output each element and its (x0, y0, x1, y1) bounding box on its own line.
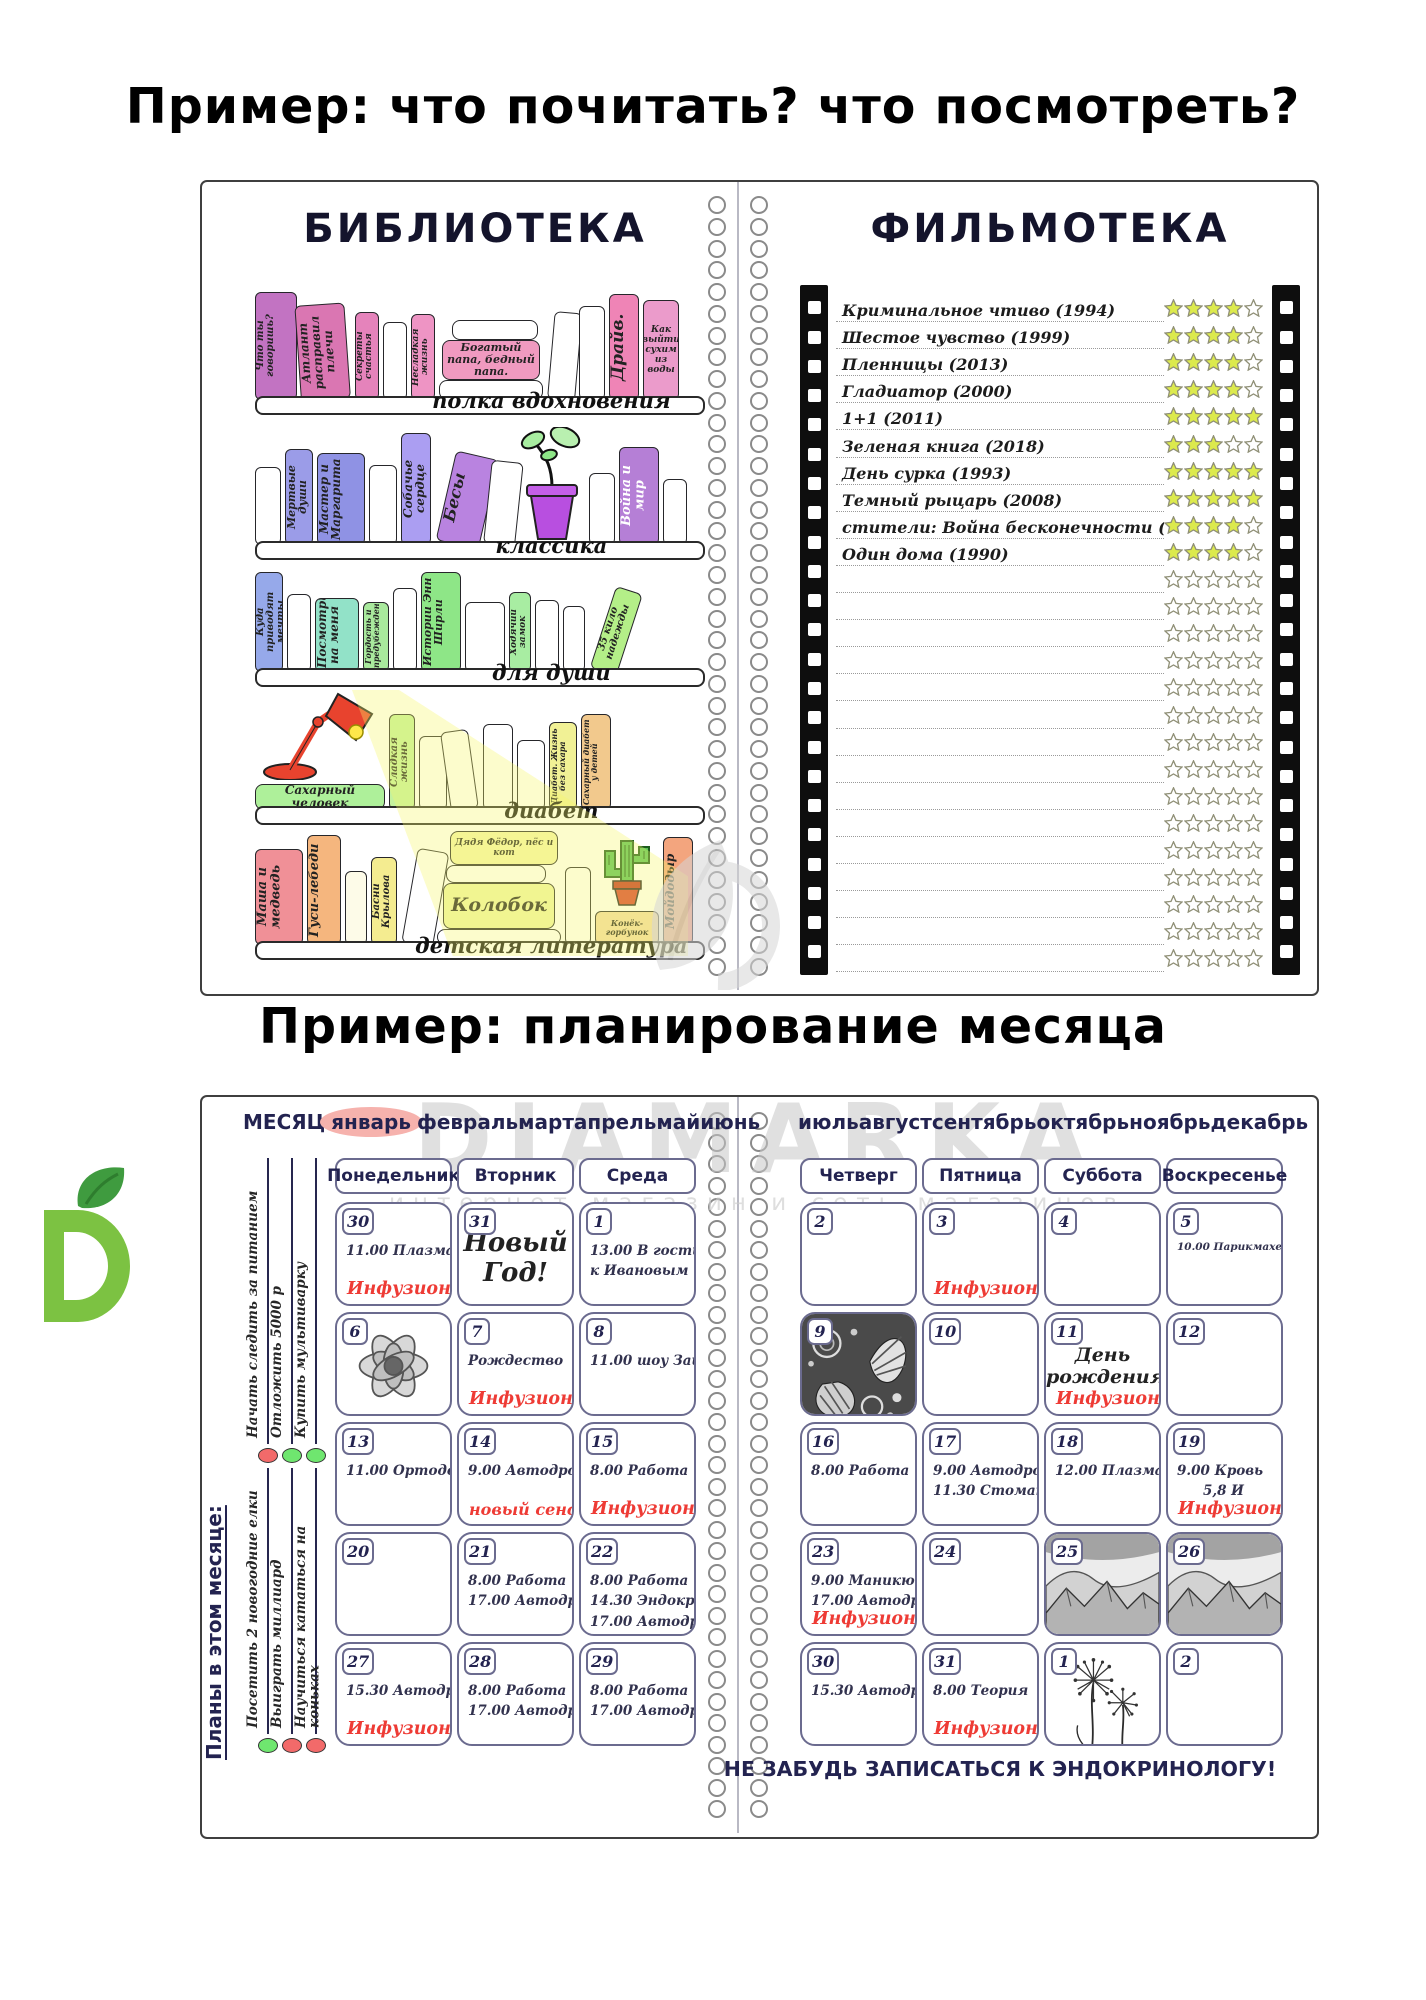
film-strip-hole (1280, 360, 1293, 373)
film-row (836, 729, 1268, 756)
star-icon (1204, 326, 1223, 348)
spiral-ring (708, 1435, 726, 1453)
star-icon (1204, 380, 1223, 402)
film-rating (1164, 922, 1268, 945)
film-strip-hole (1280, 301, 1293, 314)
film-strip-hole (1280, 477, 1293, 490)
star-icon (1204, 624, 1223, 646)
star-icon (1184, 380, 1203, 402)
spiral-ring (750, 1607, 768, 1625)
film-title: Шестое чувство (1999) (836, 328, 1164, 349)
spiral-ring (750, 718, 768, 736)
film-row: День сурка (1993) (836, 458, 1268, 485)
spiral-ring (750, 370, 768, 388)
film-rating (1164, 407, 1268, 430)
spiral-ring (750, 305, 768, 323)
star-icon (1184, 353, 1203, 375)
film-strip-hole (1280, 741, 1293, 754)
film-strip-hole (808, 448, 821, 461)
spiral-ring (750, 1628, 768, 1646)
spiral-ring (750, 348, 768, 366)
film-row (836, 674, 1268, 701)
star-icon (1184, 787, 1203, 809)
spiral-ring (708, 544, 726, 562)
star-icon (1164, 516, 1183, 538)
star-icon (1224, 353, 1243, 375)
month-name: сентябрь (932, 1110, 1037, 1134)
film-strip-hole (1280, 448, 1293, 461)
star-icon (1204, 868, 1223, 890)
star-icon (1204, 543, 1223, 565)
star-icon (1224, 949, 1243, 971)
film-rating (1164, 868, 1268, 891)
spiral-ring (708, 893, 726, 911)
film-rating (1164, 651, 1268, 674)
star-icon (1244, 462, 1263, 484)
spiral-ring (750, 1456, 768, 1474)
spiral-ring (750, 392, 768, 410)
filmoteka-title: ФИЛЬМОТЕКА (810, 206, 1290, 252)
star-icon (1244, 868, 1263, 890)
spiral-ring (708, 1671, 726, 1689)
film-row: Зеленая книга (2018) (836, 430, 1268, 457)
spiral-ring (708, 718, 726, 736)
film-title: 1+1 (2011) (836, 409, 1164, 430)
spiral-ring (708, 675, 726, 693)
star-icon (1224, 543, 1243, 565)
film-rating (1164, 353, 1268, 376)
spiral-ring (750, 1542, 768, 1560)
spiral-ring (750, 958, 768, 976)
spiral-ring (708, 1198, 726, 1216)
star-icon (1184, 543, 1203, 565)
film-strip-hole (1280, 565, 1293, 578)
film-row: Гладиатор (2000) (836, 376, 1268, 403)
star-icon (1244, 597, 1263, 619)
months-row-left: МЕСЯЦянварьфевральмартапрельмайиюнь (243, 1110, 703, 1134)
month-name: август (859, 1110, 932, 1134)
star-icon (1164, 570, 1183, 592)
star-icon (1164, 922, 1183, 944)
star-icon (1164, 841, 1183, 863)
spiral-ring (708, 1306, 726, 1324)
star-icon (1204, 814, 1223, 836)
star-icon (1184, 760, 1203, 782)
film-strip-hole (808, 536, 821, 549)
spiral-ring (708, 805, 726, 823)
film-row (836, 945, 1268, 972)
month-name: май (656, 1110, 700, 1134)
month-name: февраль (417, 1110, 518, 1134)
spiral-ring (750, 1413, 768, 1431)
star-icon (1224, 326, 1243, 348)
spiral-ring (750, 675, 768, 693)
film-list: Криминальное чтиво (1994)Шестое чувство … (836, 295, 1268, 973)
spiral-binding-holes (709, 196, 725, 976)
spiral-ring (708, 762, 726, 780)
star-icon (1244, 570, 1263, 592)
film-strip-left (800, 285, 828, 975)
spiral-ring (708, 435, 726, 453)
spiral-ring (708, 1800, 726, 1818)
film-row (836, 864, 1268, 891)
spiral-ring (708, 218, 726, 236)
spiral-ring (750, 805, 768, 823)
film-rating (1164, 570, 1268, 593)
spiral-ring (750, 784, 768, 802)
film-rating (1164, 949, 1268, 972)
spiral-binding-holes (751, 1112, 767, 1818)
film-strip-hole (1280, 711, 1293, 724)
star-icon (1224, 733, 1243, 755)
spiral-ring (708, 1155, 726, 1173)
film-strip-hole (1280, 916, 1293, 929)
spiral-ring (750, 936, 768, 954)
film-row (836, 810, 1268, 837)
film-strip-hole (1280, 594, 1293, 607)
spiral-ring (708, 1693, 726, 1711)
spiral-ring (708, 1585, 726, 1603)
star-icon (1244, 624, 1263, 646)
spiral-ring (708, 1349, 726, 1367)
film-strip-hole (1280, 682, 1293, 695)
star-icon (1244, 841, 1263, 863)
star-icon (1204, 922, 1223, 944)
star-icon (1204, 353, 1223, 375)
spiral-ring (750, 610, 768, 628)
spiral-ring (750, 893, 768, 911)
film-rating (1164, 597, 1268, 620)
month-name: ноябрь (1129, 1110, 1210, 1134)
star-icon (1224, 814, 1243, 836)
star-icon (1224, 570, 1243, 592)
spiral-ring (750, 762, 768, 780)
star-icon (1184, 435, 1203, 457)
spiral-ring (708, 1370, 726, 1388)
film-rating (1164, 787, 1268, 810)
star-icon (1204, 407, 1223, 429)
star-icon (1224, 489, 1243, 511)
spiral-ring (750, 1714, 768, 1732)
spiral-ring (750, 261, 768, 279)
star-icon (1164, 868, 1183, 890)
star-icon (1224, 787, 1243, 809)
film-title: Зеленая книга (2018) (836, 437, 1164, 458)
film-rating (1164, 814, 1268, 837)
month-name: апрель (574, 1110, 657, 1134)
film-title: Пленницы (2013) (836, 355, 1164, 376)
star-icon (1244, 787, 1263, 809)
spiral-ring (708, 457, 726, 475)
spiral-ring (708, 827, 726, 845)
spiral-ring (708, 479, 726, 497)
star-icon (1204, 760, 1223, 782)
film-strip-right (1272, 285, 1300, 975)
month-name: декабрь (1210, 1110, 1308, 1134)
spiral-ring (750, 1220, 768, 1238)
film-row: Пленницы (2013) (836, 349, 1268, 376)
star-icon (1164, 624, 1183, 646)
film-row (836, 647, 1268, 674)
star-icon (1164, 706, 1183, 728)
spiral-ring (750, 1650, 768, 1668)
star-icon (1204, 516, 1223, 538)
spiral-ring (750, 327, 768, 345)
spiral-ring (750, 544, 768, 562)
film-strip-hole (1280, 623, 1293, 636)
spiral-ring (750, 740, 768, 758)
spiral-ring (708, 1521, 726, 1539)
spiral-ring (708, 1327, 726, 1345)
star-icon (1244, 435, 1263, 457)
film-rating (1164, 516, 1268, 539)
spiral-ring (750, 1435, 768, 1453)
film-strip-hole (1280, 887, 1293, 900)
film-rating (1164, 380, 1268, 403)
spiral-ring (750, 588, 768, 606)
star-icon (1164, 895, 1183, 917)
film-row (836, 837, 1268, 864)
page-title-middle: Пример: планирование месяца (0, 998, 1426, 1055)
film-strip-hole (808, 945, 821, 958)
spiral-ring (708, 1628, 726, 1646)
spiral-ring (708, 849, 726, 867)
spiral-ring (750, 1284, 768, 1302)
film-rating (1164, 733, 1268, 756)
spiral-ring (708, 240, 726, 258)
star-icon (1164, 733, 1183, 755)
spiral-ring (708, 1478, 726, 1496)
spiral-ring (750, 1306, 768, 1324)
spiral-ring (750, 1134, 768, 1152)
spiral-ring (750, 697, 768, 715)
month-name: октябрь (1036, 1110, 1129, 1134)
spiral-ring (708, 1263, 726, 1281)
film-strip-hole (1280, 389, 1293, 402)
film-rating (1164, 760, 1268, 783)
film-row: Один дома (1990) (836, 539, 1268, 566)
film-strip-hole (1280, 828, 1293, 841)
film-rating (1164, 706, 1268, 729)
star-icon (1204, 787, 1223, 809)
spiral-ring (708, 871, 726, 889)
film-title: День сурка (1993) (836, 464, 1164, 485)
star-icon (1224, 624, 1243, 646)
star-icon (1224, 380, 1243, 402)
star-icon (1224, 760, 1243, 782)
star-icon (1184, 841, 1203, 863)
star-icon (1224, 841, 1243, 863)
star-icon (1204, 651, 1223, 673)
film-rating (1164, 435, 1268, 458)
star-icon (1184, 489, 1203, 511)
spiral-ring (708, 936, 726, 954)
star-icon (1224, 435, 1243, 457)
star-icon (1164, 380, 1183, 402)
spiral-ring (708, 588, 726, 606)
spiral-ring (708, 283, 726, 301)
star-icon (1244, 353, 1263, 375)
star-icon (1244, 516, 1263, 538)
star-icon (1184, 868, 1203, 890)
spiral-ring (708, 522, 726, 540)
months-row-right: июльавгустсентябрьоктябрьноябрьдекабрь (798, 1110, 1306, 1134)
star-icon (1244, 326, 1263, 348)
spiral-ring (750, 1564, 768, 1582)
spiral-ring (708, 631, 726, 649)
spiral-ring (708, 1736, 726, 1754)
spiral-ring (750, 1800, 768, 1818)
spiral-ring (750, 1349, 768, 1367)
film-title: Темный рыцарь (2008) (836, 491, 1164, 512)
star-icon (1244, 814, 1263, 836)
star-icon (1204, 678, 1223, 700)
spiral-ring (708, 958, 726, 976)
star-icon (1184, 949, 1203, 971)
star-icon (1244, 407, 1263, 429)
star-icon (1184, 326, 1203, 348)
film-row (836, 918, 1268, 945)
diamarka-logo (26, 1160, 152, 1332)
spiral-ring (750, 1198, 768, 1216)
month-name: июнь (700, 1110, 760, 1134)
star-icon (1244, 651, 1263, 673)
spiral-ring (708, 1241, 726, 1259)
spiral-ring (750, 1370, 768, 1388)
star-icon (1224, 868, 1243, 890)
page-title-top: Пример: что почитать? что посмотреть? (0, 78, 1426, 135)
film-row (836, 783, 1268, 810)
film-rating (1164, 462, 1268, 485)
spiral-ring (750, 1585, 768, 1603)
film-strip-hole (808, 741, 821, 754)
film-row: стители: Война бесконечности (2018) (836, 512, 1268, 539)
star-icon (1184, 462, 1203, 484)
star-icon (1204, 706, 1223, 728)
star-icon (1184, 570, 1203, 592)
spiral-ring (708, 1564, 726, 1582)
library-title: БИБЛИОТЕКА (240, 206, 710, 252)
star-icon (1244, 922, 1263, 944)
film-row (836, 756, 1268, 783)
spiral-ring (750, 1263, 768, 1281)
film-strip-hole (808, 360, 821, 373)
film-strip-hole (1280, 945, 1293, 958)
spiral-ring (708, 348, 726, 366)
spiral-ring (750, 501, 768, 519)
spiral-ring (708, 327, 726, 345)
star-icon (1204, 299, 1223, 321)
film-strip-hole (808, 301, 821, 314)
spiral-ring (750, 1693, 768, 1711)
film-strip-hole (808, 916, 821, 929)
film-strip-hole (1280, 858, 1293, 871)
film-row (836, 891, 1268, 918)
film-strip-hole (808, 828, 821, 841)
star-icon (1224, 706, 1243, 728)
goals-title: Планы в этом месяце: (202, 1428, 226, 1760)
star-icon (1224, 299, 1243, 321)
star-icon (1224, 516, 1243, 538)
spiral-ring (750, 1478, 768, 1496)
spiral-ring (708, 1456, 726, 1474)
film-strip-hole (808, 418, 821, 431)
film-row: 1+1 (2011) (836, 403, 1268, 430)
month-name: июль (798, 1110, 859, 1134)
film-strip-hole (808, 477, 821, 490)
spiral-ring (750, 566, 768, 584)
star-icon (1184, 651, 1203, 673)
star-icon (1204, 489, 1223, 511)
spiral-ring (750, 914, 768, 932)
star-icon (1184, 922, 1203, 944)
star-icon (1164, 489, 1183, 511)
film-title (836, 970, 1164, 972)
spiral-ring (750, 479, 768, 497)
spiral-ring (750, 1671, 768, 1689)
star-icon (1224, 407, 1243, 429)
star-icon (1244, 380, 1263, 402)
spiral-ring (750, 522, 768, 540)
spiral-ring (708, 414, 726, 432)
star-icon (1164, 435, 1183, 457)
spiral-ring (708, 1542, 726, 1560)
film-strip-hole (1280, 418, 1293, 431)
star-icon (1184, 733, 1203, 755)
star-icon (1244, 895, 1263, 917)
spiral-ring (708, 305, 726, 323)
film-rating (1164, 489, 1268, 512)
spiral-ring (708, 784, 726, 802)
spiral-ring (708, 1413, 726, 1431)
spiral-ring (708, 1134, 726, 1152)
star-icon (1244, 760, 1263, 782)
star-icon (1164, 678, 1183, 700)
spiral-ring (708, 740, 726, 758)
film-strip-hole (808, 858, 821, 871)
star-icon (1244, 949, 1263, 971)
star-icon (1164, 787, 1183, 809)
star-icon (1164, 326, 1183, 348)
spiral-ring (708, 392, 726, 410)
spiral-ring (708, 1499, 726, 1517)
spiral-ring (708, 610, 726, 628)
film-rating (1164, 543, 1268, 566)
spiral-ring (708, 1177, 726, 1195)
star-icon (1164, 543, 1183, 565)
month-name: март (518, 1110, 574, 1134)
film-row (836, 566, 1268, 593)
spiral-ring (750, 1499, 768, 1517)
star-icon (1164, 814, 1183, 836)
star-icon (1224, 462, 1243, 484)
spiral-ring (708, 1392, 726, 1410)
spiral-ring (708, 370, 726, 388)
film-rating (1164, 841, 1268, 864)
star-icon (1164, 407, 1183, 429)
film-strip-hole (808, 389, 821, 402)
spiral-ring (750, 218, 768, 236)
film-strip-hole (808, 653, 821, 666)
spiral-ring (708, 566, 726, 584)
spiral-binding-holes (709, 1112, 725, 1818)
film-strip-hole (1280, 653, 1293, 666)
spiral-ring (750, 283, 768, 301)
star-icon (1204, 949, 1223, 971)
spiral-ring (708, 196, 726, 214)
spiral-ring (708, 501, 726, 519)
film-strip-hole (1280, 506, 1293, 519)
